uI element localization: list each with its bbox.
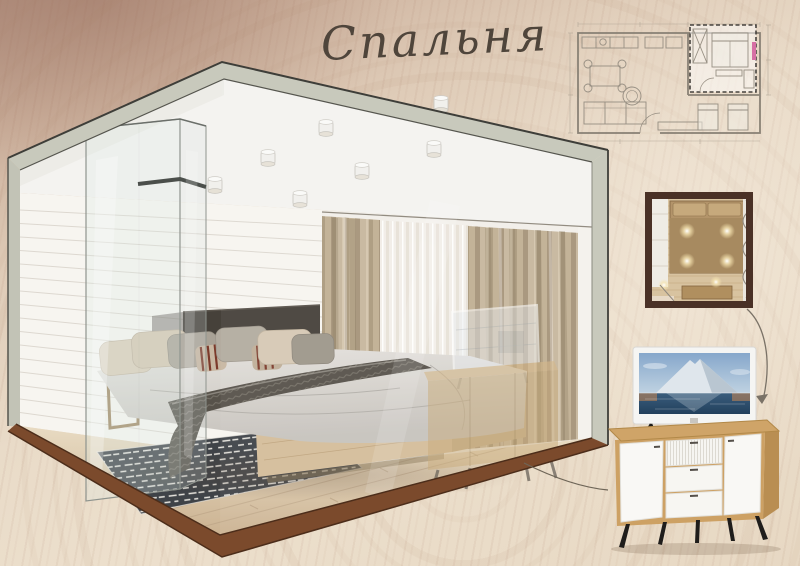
detail-pillow	[673, 203, 706, 216]
leader-line-dresser-to-sideboard	[524, 463, 608, 490]
arrowhead-icon	[756, 394, 768, 404]
room-cutaway	[8, 62, 608, 566]
detail-wardrobe	[652, 199, 668, 287]
plan-dining-set	[584, 60, 626, 92]
bedroom-plan-detail	[645, 192, 753, 308]
sideboard-left-door	[620, 441, 663, 522]
left-slab-edge	[8, 158, 20, 426]
sideboard-drawers	[666, 438, 722, 518]
plan-tv-unit	[658, 122, 702, 130]
tv-screen	[639, 353, 750, 414]
scene-graphics	[0, 0, 800, 566]
glass-dressing-box	[86, 119, 206, 501]
sideboard-shadow	[611, 543, 781, 555]
plan-kitchen	[582, 37, 682, 48]
highlighted-bedroom	[690, 25, 756, 92]
sideboard-detail	[609, 420, 781, 555]
detail-pillow	[708, 203, 741, 216]
right-slab-edge	[592, 150, 608, 445]
design-board: Спальня	[0, 0, 800, 566]
tv-detail	[633, 347, 756, 434]
detail-dresser	[682, 286, 732, 299]
sideboard-side-panel	[763, 430, 779, 519]
sideboard-right-door	[724, 434, 761, 515]
plan-accent-marker	[752, 42, 756, 60]
plan-sofa	[584, 102, 646, 124]
downlight-icon	[208, 177, 222, 194]
plan-bed	[712, 33, 748, 67]
apartment-floor-plan	[568, 22, 771, 144]
plan-lower-beds	[698, 104, 748, 130]
